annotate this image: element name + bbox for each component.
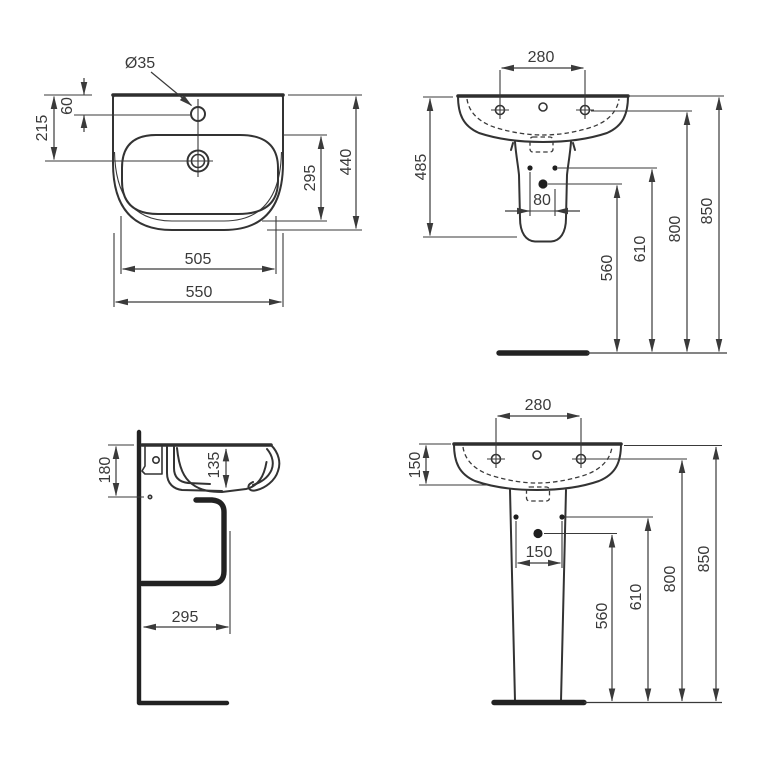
dim-label-trap-height: 560 — [599, 255, 616, 282]
dim-label-height-semi-pedestal: 485 — [413, 154, 430, 181]
dim-label-bowl-width: 505 — [185, 251, 212, 268]
water-inlet-dot — [538, 179, 547, 188]
dim-label-overall-depth: 440 — [338, 149, 355, 176]
dim-label-bolt-spacing: 80 — [533, 192, 551, 209]
dim-label-bolt-spacing-full: 150 — [526, 544, 553, 561]
dim-label-trap-height-full: 560 — [594, 603, 611, 630]
dim-label-inlet-height-full: 610 — [628, 584, 645, 611]
dim-label-rim-height: 850 — [699, 198, 716, 225]
pedestal-left-edge — [510, 490, 515, 701]
tap-hole-leader-line — [151, 72, 192, 106]
dim-label-inlet-height: 610 — [632, 236, 649, 263]
semi-pedestal-ear-left — [511, 143, 513, 150]
bolt-hole-left-dot-full — [513, 514, 518, 519]
dim-label-tap-hole-offset: 60 — [59, 97, 76, 115]
dim-label-drain-offset: 215 — [34, 115, 51, 142]
dim-label-bowl-depth: 295 — [302, 165, 319, 192]
basin-inner-hidden-edge-full — [463, 447, 612, 483]
dim-label-fixing-height-full: 800 — [662, 566, 679, 593]
bolt-hole-left-dot — [527, 165, 532, 170]
dim-label-rim-height-full: 850 — [696, 546, 713, 573]
dim-label-overall-width: 550 — [186, 284, 213, 301]
dim-label-fixing-drop: 180 — [97, 457, 114, 484]
dim-label-fixing-centres-full: 280 — [525, 397, 552, 414]
waste-outlet-hidden — [530, 137, 553, 152]
bolt-hole-right-dot — [552, 165, 557, 170]
washbasin-dimension-drawing: Ø35 60 215 295 440 505 550 — [0, 0, 784, 765]
front-rim-inner — [253, 449, 273, 485]
tap-hole-front — [539, 103, 547, 111]
dim-label-fixing-centres: 280 — [528, 49, 555, 66]
front-rim-outer — [248, 445, 279, 491]
front-view-semi-pedestal: 280 80 485 560 610 800 850 — [413, 49, 727, 353]
tap-hole-front-full — [533, 451, 541, 459]
basin-inner-hidden-edge — [467, 99, 619, 135]
dim-label-tap-hole-diameter: Ø35 — [125, 55, 155, 72]
dim-label-rim-drop: 150 — [407, 452, 424, 479]
dim-label-outlet-distance: 295 — [172, 609, 199, 626]
bracket-hole — [153, 457, 159, 463]
technical-drawing-sheet: Ø35 60 215 295 440 505 550 — [0, 0, 784, 765]
waste-trap-pipe — [142, 500, 224, 584]
front-view-full-pedestal: 280 150 150 560 610 800 850 — [407, 397, 722, 703]
bolt-hole-right-dot-full — [559, 514, 564, 519]
dim-label-bowl-inner-depth: 135 — [206, 452, 223, 479]
bowl-outline — [122, 135, 278, 214]
lower-fixing-point — [148, 495, 151, 498]
water-inlet-dot-full — [533, 529, 542, 538]
plan-view: Ø35 60 215 295 440 505 550 — [34, 55, 362, 307]
dim-label-fixing-height: 800 — [667, 216, 684, 243]
semi-pedestal-ear-right — [573, 143, 575, 150]
side-view: 180 135 295 — [97, 432, 279, 703]
